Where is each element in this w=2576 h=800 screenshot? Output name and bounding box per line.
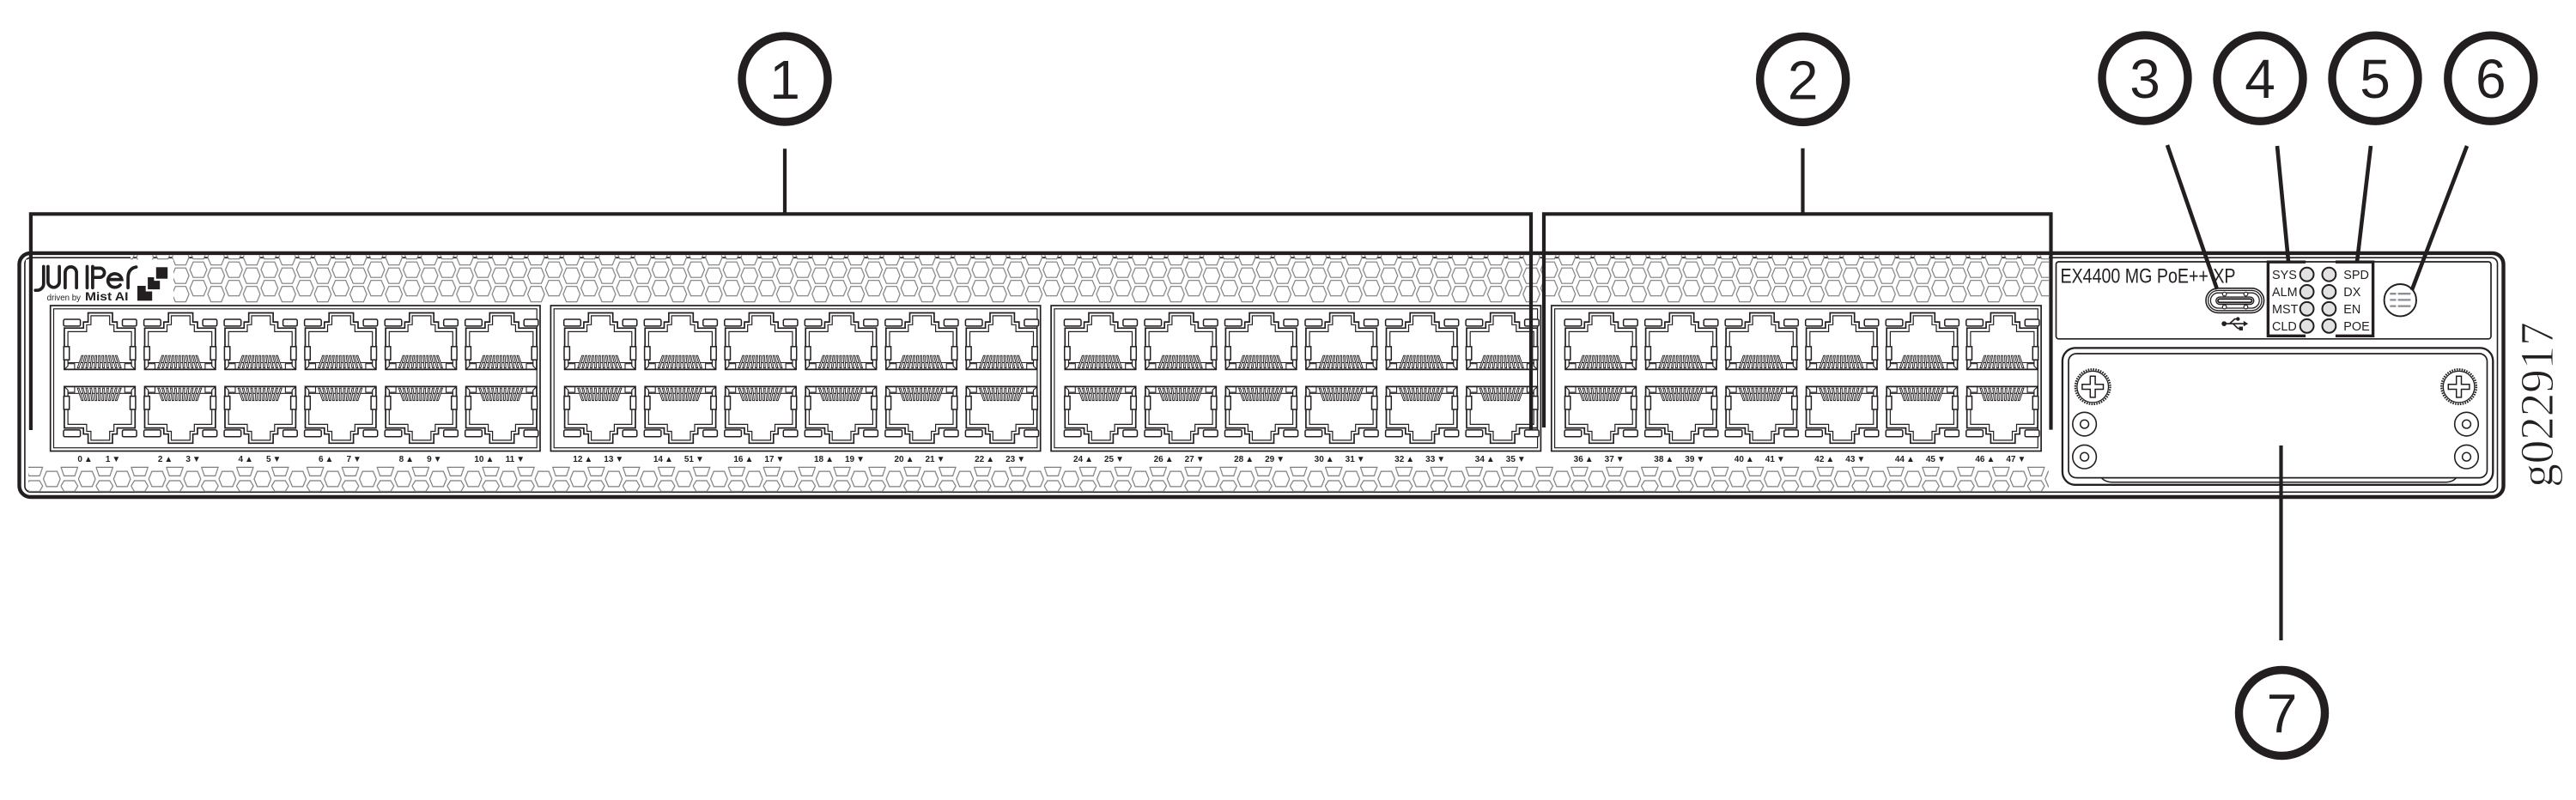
svg-text:35 ▼: 35 ▼ bbox=[1506, 455, 1526, 464]
svg-text:46 ▲: 46 ▲ bbox=[1975, 455, 1995, 464]
svg-text:9 ▼: 9 ▼ bbox=[427, 455, 441, 464]
svg-text:43 ▼: 43 ▼ bbox=[1845, 455, 1865, 464]
svg-text:2 ▲: 2 ▲ bbox=[158, 455, 173, 464]
svg-text:20 ▲: 20 ▲ bbox=[894, 455, 914, 464]
svg-text:5 ▼: 5 ▼ bbox=[266, 455, 281, 464]
svg-text:42 ▲: 42 ▲ bbox=[1814, 455, 1834, 464]
svg-text:DX: DX bbox=[2343, 286, 2360, 300]
svg-text:12 ▲: 12 ▲ bbox=[573, 455, 592, 464]
svg-text:29 ▼: 29 ▼ bbox=[1265, 455, 1285, 464]
svg-text:SPD: SPD bbox=[2343, 269, 2369, 282]
svg-text:34 ▲: 34 ▲ bbox=[1475, 455, 1495, 464]
svg-text:4 ▲: 4 ▲ bbox=[238, 455, 252, 464]
svg-text:36 ▲: 36 ▲ bbox=[1574, 455, 1594, 464]
svg-text:37 ▼: 37 ▼ bbox=[1605, 455, 1625, 464]
svg-text:47 ▼: 47 ▼ bbox=[2006, 455, 2026, 464]
svg-text:3 ▼: 3 ▼ bbox=[185, 455, 200, 464]
svg-text:16 ▲: 16 ▲ bbox=[733, 455, 753, 464]
svg-text:30 ▲: 30 ▲ bbox=[1315, 455, 1334, 464]
svg-text:5: 5 bbox=[2360, 48, 2391, 110]
svg-text:POE: POE bbox=[2343, 320, 2369, 334]
svg-text:6 ▲: 6 ▲ bbox=[319, 455, 333, 464]
svg-text:21 ▼: 21 ▼ bbox=[925, 455, 945, 464]
svg-text:51 ▼: 51 ▼ bbox=[684, 455, 704, 464]
svg-text:38 ▲: 38 ▲ bbox=[1654, 455, 1674, 464]
svg-text:MST: MST bbox=[2272, 303, 2299, 317]
svg-text:26 ▲: 26 ▲ bbox=[1154, 455, 1174, 464]
svg-text:driven by: driven by bbox=[47, 294, 81, 303]
svg-text:1 ▼: 1 ▼ bbox=[106, 455, 120, 464]
svg-text:2: 2 bbox=[1788, 49, 1819, 111]
svg-text:41 ▼: 41 ▼ bbox=[1765, 455, 1785, 464]
svg-text:3: 3 bbox=[2129, 48, 2160, 110]
svg-text:44 ▲: 44 ▲ bbox=[1895, 455, 1915, 464]
svg-text:1: 1 bbox=[769, 49, 800, 111]
svg-text:10 ▲: 10 ▲ bbox=[474, 455, 494, 464]
svg-text:24 ▲: 24 ▲ bbox=[1073, 455, 1093, 464]
svg-text:SYS: SYS bbox=[2272, 269, 2297, 282]
svg-text:CLD: CLD bbox=[2272, 320, 2297, 334]
svg-text:13 ▼: 13 ▼ bbox=[604, 455, 623, 464]
svg-text:32 ▲: 32 ▲ bbox=[1394, 455, 1414, 464]
svg-text:18 ▲: 18 ▲ bbox=[814, 455, 834, 464]
svg-text:17 ▼: 17 ▼ bbox=[764, 455, 784, 464]
svg-text:ALM: ALM bbox=[2272, 286, 2298, 300]
svg-text:0 ▲: 0 ▲ bbox=[77, 455, 92, 464]
svg-text:14 ▲: 14 ▲ bbox=[653, 455, 673, 464]
svg-text:33 ▼: 33 ▼ bbox=[1425, 455, 1445, 464]
svg-text:11 ▼: 11 ▼ bbox=[506, 455, 525, 464]
svg-text:40 ▲: 40 ▲ bbox=[1735, 455, 1754, 464]
svg-text:45 ▼: 45 ▼ bbox=[1926, 455, 1946, 464]
svg-text:39 ▼: 39 ▼ bbox=[1685, 455, 1704, 464]
svg-text:6: 6 bbox=[2476, 48, 2506, 110]
svg-text:4: 4 bbox=[2245, 48, 2275, 110]
svg-text:31 ▼: 31 ▼ bbox=[1346, 455, 1365, 464]
svg-text:7 ▼: 7 ▼ bbox=[346, 455, 361, 464]
svg-text:27 ▼: 27 ▼ bbox=[1185, 455, 1205, 464]
svg-text:25 ▼: 25 ▼ bbox=[1104, 455, 1124, 464]
svg-text:EN: EN bbox=[2343, 303, 2360, 317]
svg-text:Mist AI: Mist AI bbox=[85, 289, 129, 303]
svg-text:28 ▲: 28 ▲ bbox=[1234, 455, 1254, 464]
svg-text:8 ▲: 8 ▲ bbox=[399, 455, 414, 464]
svg-text:19 ▼: 19 ▼ bbox=[845, 455, 865, 464]
svg-text:g022917: g022917 bbox=[2511, 322, 2563, 488]
svg-text:7: 7 bbox=[2267, 683, 2298, 745]
svg-text:23 ▼: 23 ▼ bbox=[1005, 455, 1025, 464]
svg-text:22 ▲: 22 ▲ bbox=[975, 455, 994, 464]
